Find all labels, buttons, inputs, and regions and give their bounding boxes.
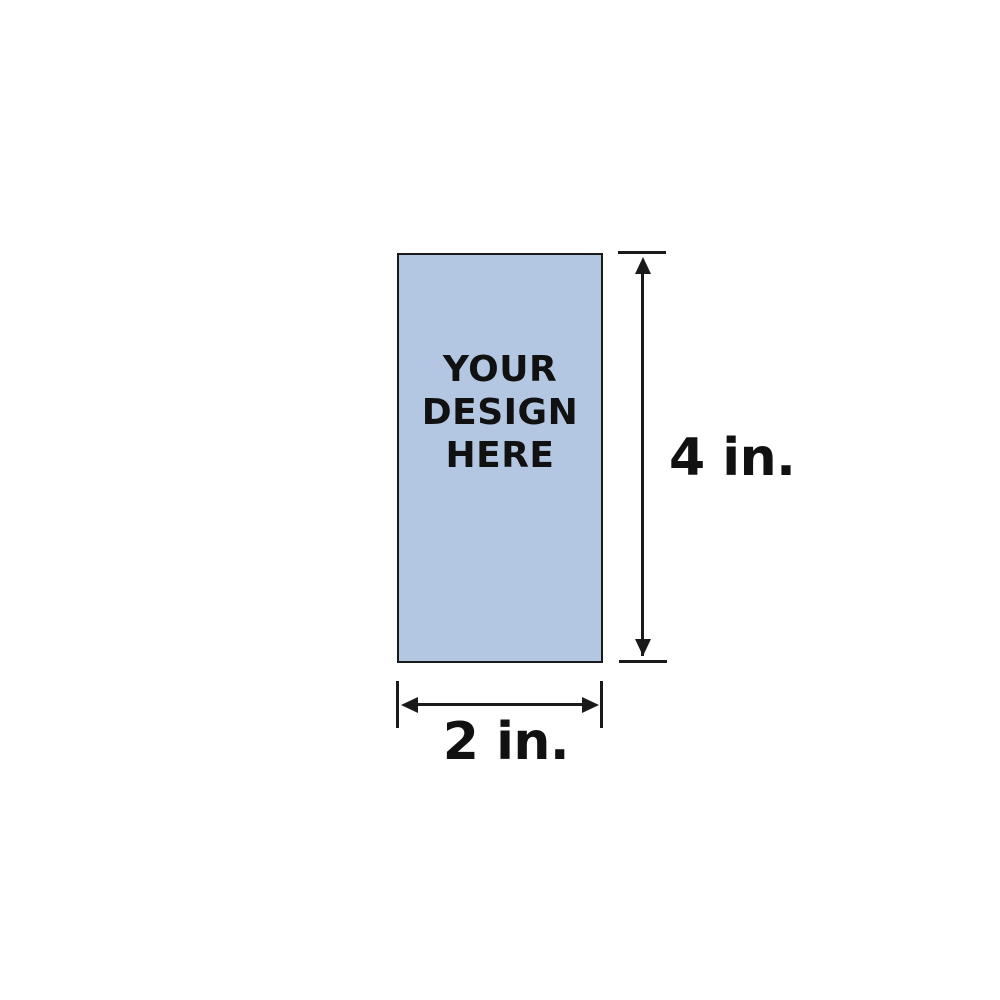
arrowhead-right-icon — [582, 697, 599, 713]
mockup-canvas: YOUR DESIGN HERE 4 in. 2 in. — [0, 0, 1000, 1000]
width-label: 2 in. — [397, 716, 615, 768]
height-top-tick — [618, 251, 666, 254]
placeholder-text-line-2: DESIGN — [422, 391, 578, 434]
arrowhead-left-icon — [401, 697, 418, 713]
placeholder-text-line-3: HERE — [445, 434, 554, 477]
arrowhead-down-icon — [635, 639, 651, 656]
design-placeholder-rect: YOUR DESIGN HERE — [397, 253, 603, 663]
height-label: 4 in. — [669, 432, 795, 484]
arrowhead-up-icon — [635, 257, 651, 274]
height-bottom-tick — [619, 660, 667, 663]
height-dimension-line — [641, 261, 644, 656]
width-dimension-line — [406, 703, 594, 706]
placeholder-text-line-1: YOUR — [443, 348, 557, 391]
